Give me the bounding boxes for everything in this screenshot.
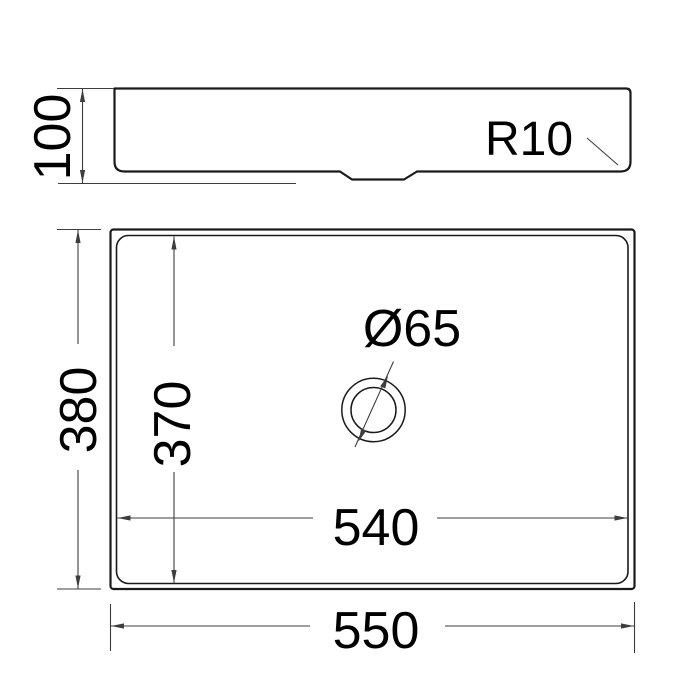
dim-100-label: 100 (24, 94, 82, 181)
dim-380-label: 380 (50, 367, 108, 454)
dim-370-label: 370 (144, 381, 202, 468)
drain-diameter-label: Ø65 (363, 300, 461, 358)
side-view: 100 R10 (24, 89, 631, 184)
r10-label: R10 (485, 113, 573, 166)
sink-dimension-drawing: 100 R10 380 370 540 Ø65 550 (0, 0, 700, 700)
top-view: 380 370 540 Ø65 550 (50, 230, 635, 661)
dim-550-label: 550 (333, 602, 420, 660)
dim-540-label: 540 (333, 499, 420, 557)
